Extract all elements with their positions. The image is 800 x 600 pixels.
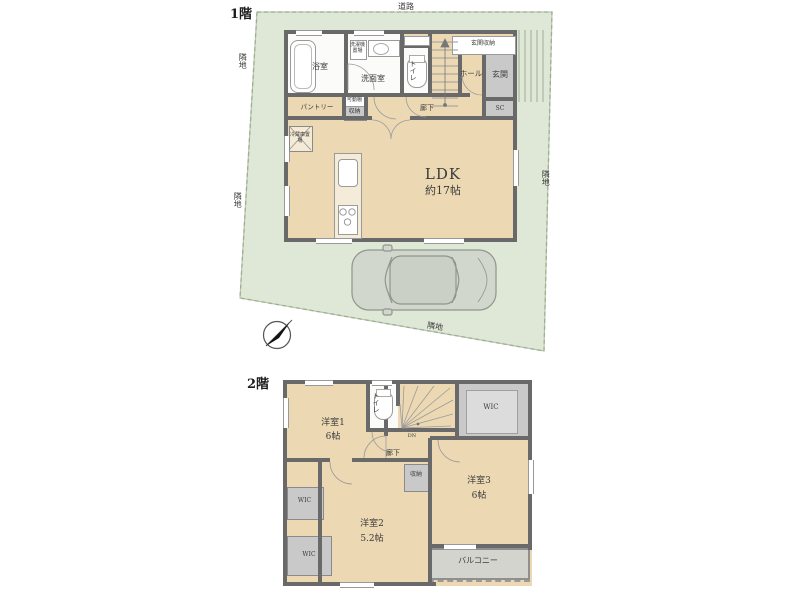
stairs-fan (400, 386, 453, 428)
room-label-corridor-2f: 廊下 (378, 449, 408, 457)
room-label-storage-2f: 収納 (404, 472, 428, 479)
room-label-wic-left-low: WIC (290, 552, 328, 559)
floor2-detail-layer (0, 0, 800, 600)
room-label-balcony: バルコニー (448, 556, 508, 565)
room-label-wic-topright: WIC (466, 403, 516, 411)
room-label-bedroom1-size: 6帖 (303, 432, 363, 442)
room-label-bedroom1: 洋室1 (303, 418, 363, 428)
room-label-bedroom3-size: 6帖 (449, 491, 509, 501)
floor-plan-canvas: 1階 道路 隣地 隣地 隣地 隣地 浴室 洗面室 洗濯機置場 トイレ ホール 玄… (0, 0, 800, 600)
floor2-label: 2階 (241, 378, 275, 393)
room-label-bedroom2: 洋室2 (342, 519, 402, 529)
room-label-bedroom2-size: 5.2帖 (342, 534, 402, 544)
room-label-bedroom3: 洋室3 (449, 476, 509, 486)
room-label-toilet-2f: トイレ (372, 392, 380, 413)
room-label-wic-left-mid: WIC (288, 498, 321, 505)
stairs-down-label: DN (401, 434, 423, 440)
